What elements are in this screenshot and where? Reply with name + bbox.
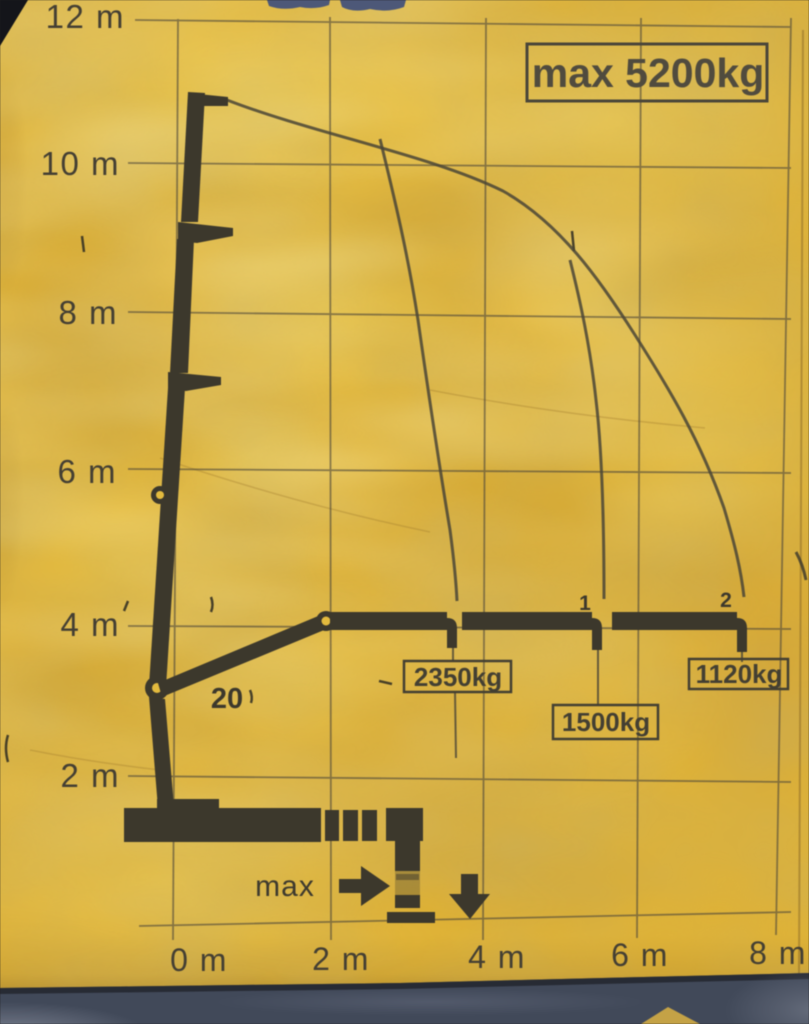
svg-text:12 m: 12 m bbox=[46, 0, 125, 35]
svg-text:1120kg: 1120kg bbox=[696, 659, 783, 689]
svg-text:6 m: 6 m bbox=[611, 937, 669, 973]
svg-text:1500kg: 1500kg bbox=[562, 707, 650, 737]
svg-text:8 m: 8 m bbox=[58, 294, 118, 331]
svg-text:0 m: 0 m bbox=[170, 942, 228, 978]
svg-text:max 5200kg: max 5200kg bbox=[532, 50, 765, 96]
svg-text:4 m: 4 m bbox=[60, 606, 120, 643]
svg-text:20: 20 bbox=[211, 683, 243, 715]
svg-text:6 m: 6 m bbox=[57, 453, 117, 490]
svg-text:4 m: 4 m bbox=[468, 939, 526, 975]
svg-text:8 m: 8 m bbox=[749, 935, 807, 971]
svg-text:max: max bbox=[255, 870, 315, 903]
svg-text:2 m: 2 m bbox=[60, 757, 120, 794]
svg-text:2350kg: 2350kg bbox=[414, 662, 502, 692]
svg-text:2: 2 bbox=[720, 589, 732, 612]
svg-text:1: 1 bbox=[579, 592, 591, 615]
svg-text:2 m: 2 m bbox=[312, 941, 370, 977]
svg-text:10 m: 10 m bbox=[41, 145, 120, 182]
